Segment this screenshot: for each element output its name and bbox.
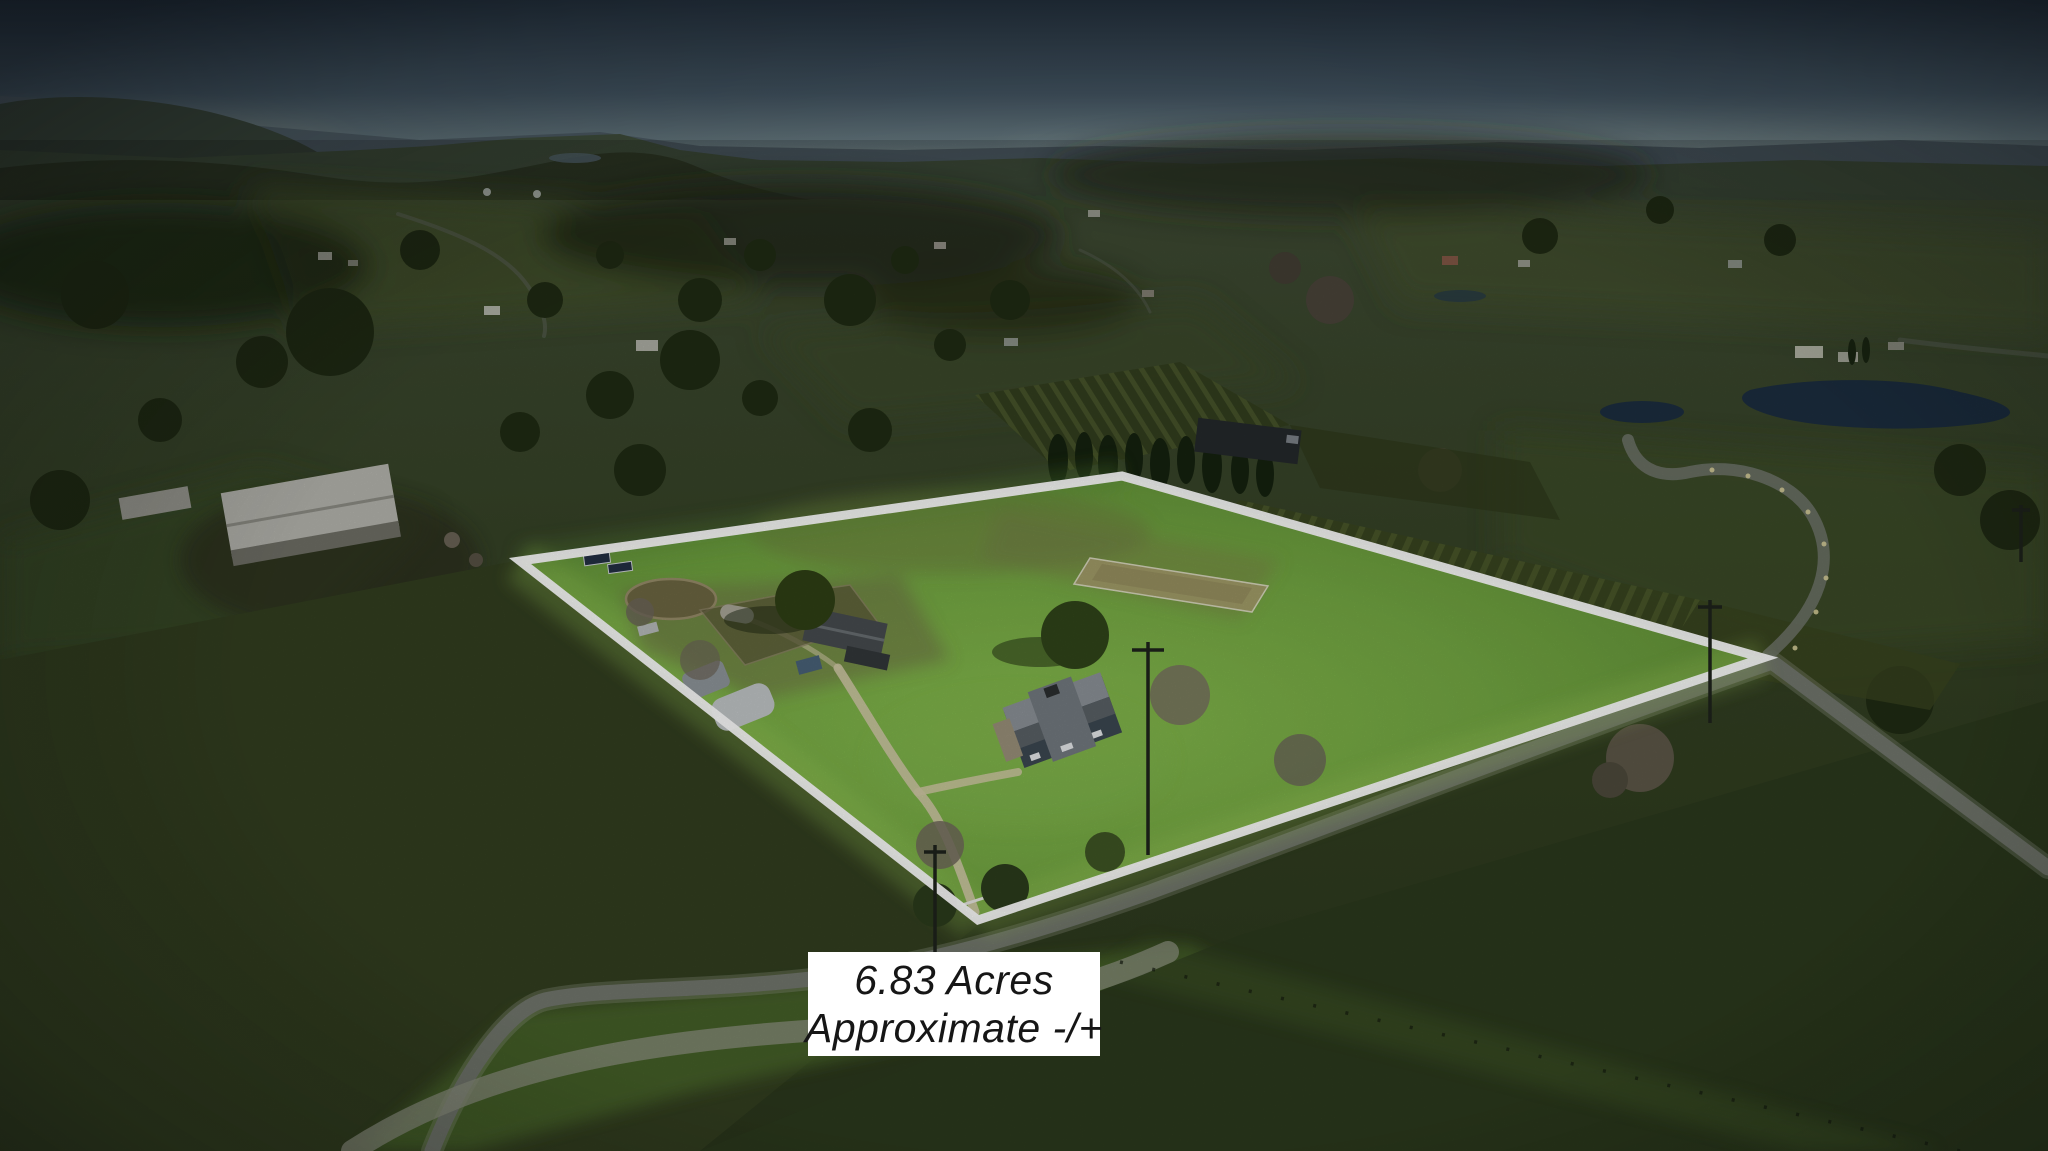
acreage-value: 6.83 Acres xyxy=(854,956,1053,1004)
acreage-label: 6.83 Acres Approximate -/+ xyxy=(808,952,1100,1056)
aerial-property-photo: 6.83 Acres Approximate -/+ xyxy=(0,0,2048,1151)
acreage-qualifier: Approximate -/+ xyxy=(805,1004,1103,1052)
